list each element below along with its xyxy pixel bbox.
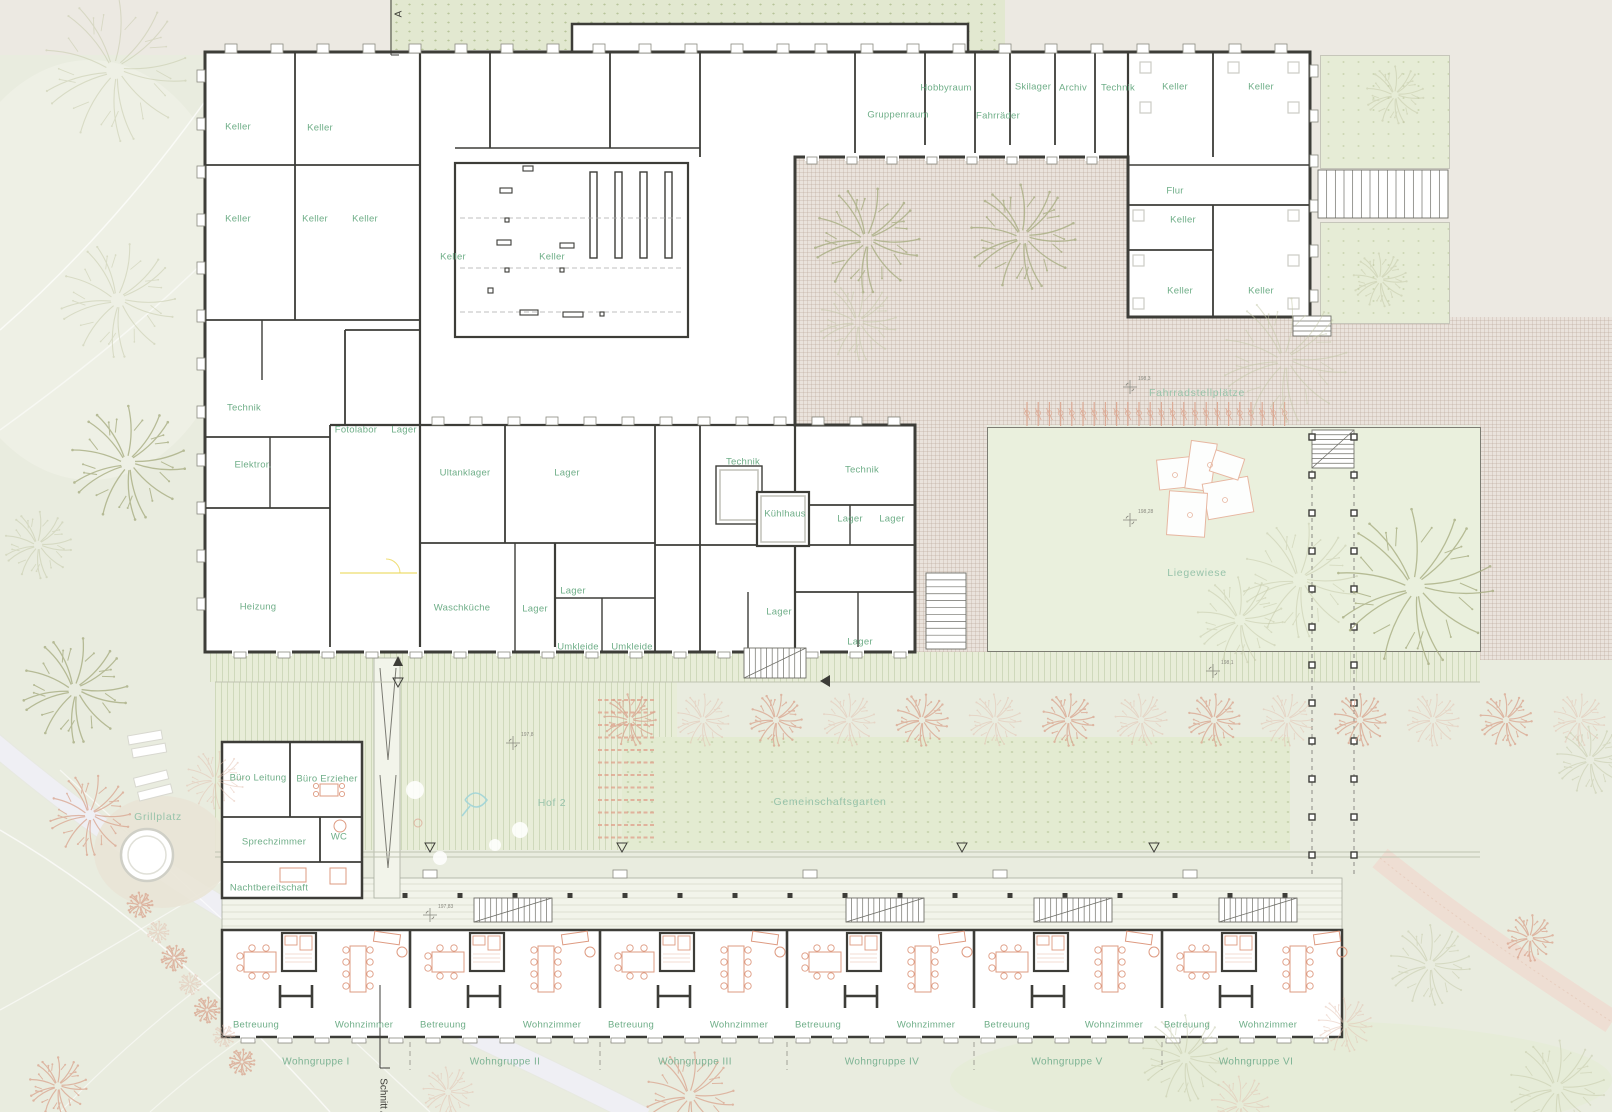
colonnade-deck: [215, 658, 1480, 930]
plan-drawing: [0, 0, 1612, 1112]
architectural-site-plan: A Schnitt A KellerKellerKellerKellerKell…: [0, 0, 1612, 1112]
